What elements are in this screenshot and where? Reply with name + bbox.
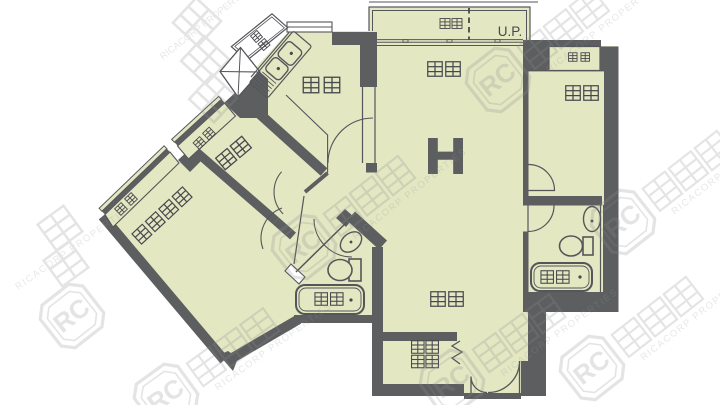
svg-text:U.P.: U.P. xyxy=(498,24,523,39)
